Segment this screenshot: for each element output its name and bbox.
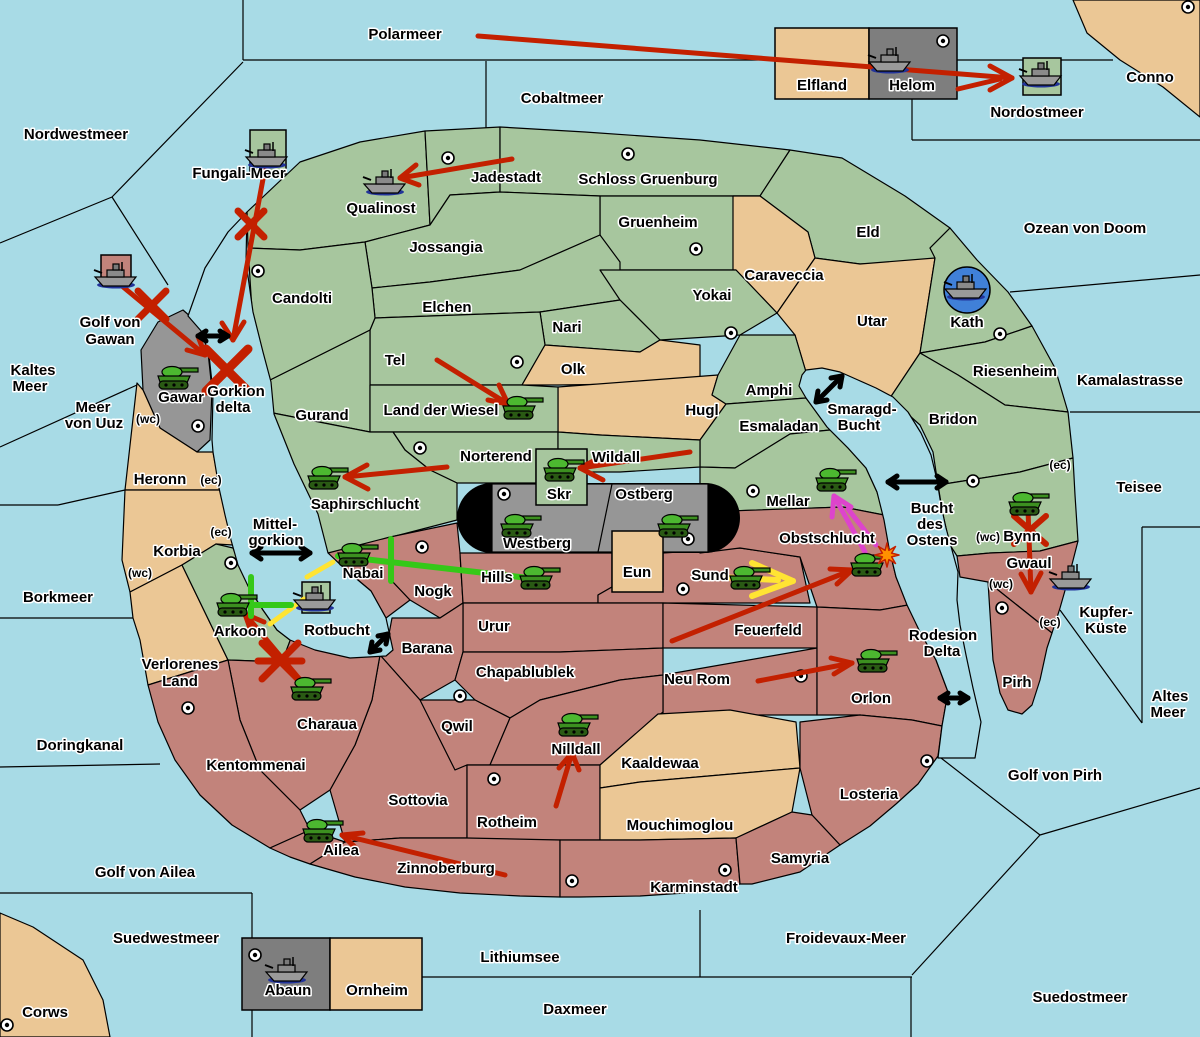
label-nordwestmeer: Nordwestmeer: [24, 126, 128, 143]
label-norterend: Norterend: [460, 448, 532, 465]
region-ornheim[interactable]: [330, 938, 422, 1010]
label-chapablublek: Chapablublek: [476, 664, 575, 681]
city-marker-core: [998, 332, 1002, 336]
label-doringkanal: Doringkanal: [37, 737, 124, 754]
label--ec-: (ec): [1049, 458, 1070, 472]
city-marker-core: [626, 152, 630, 156]
label-gwaul: Gwaul: [1006, 555, 1051, 572]
label--ec-: (ec): [1039, 615, 1060, 629]
label-candolti: Candolti: [272, 290, 332, 307]
label-land-der-wiesel: Land der Wiesel: [384, 402, 499, 419]
label-teisee: Teisee: [1116, 479, 1162, 496]
label-sund: Sund: [691, 567, 729, 584]
label-froidevaux-meer: Froidevaux-Meer: [786, 930, 906, 947]
label-nari: Nari: [552, 319, 581, 336]
label-arkoon: Arkoon: [214, 623, 267, 640]
city-marker-core: [502, 492, 506, 496]
label-kentommenai: Kentommenai: [206, 757, 305, 774]
explosion-icon: [875, 543, 899, 567]
label-caraveccia: Caraveccia: [744, 267, 824, 284]
label-kupfer-: Kupfer-: [1079, 604, 1132, 621]
city-marker-core: [256, 269, 260, 273]
label-losteria: Losteria: [840, 786, 899, 803]
label-bynn: Bynn: [1003, 528, 1041, 545]
label-gruenheim: Gruenheim: [618, 214, 697, 231]
city-marker-core: [5, 1023, 9, 1027]
label-orlon: Orlon: [851, 690, 891, 707]
label-qualinost: Qualinost: [346, 200, 415, 217]
label-elfland: Elfland: [797, 77, 847, 94]
label-delta: Delta: [924, 643, 961, 660]
city-marker-core: [446, 156, 450, 160]
label-heronn: Heronn: [134, 471, 187, 488]
label-corws: Corws: [22, 1004, 68, 1021]
label-charaua: Charaua: [297, 716, 358, 733]
label--wc-: (wc): [128, 566, 152, 580]
label-kamalastrasse: Kamalastrasse: [1077, 372, 1183, 389]
city-marker-core: [694, 247, 698, 251]
label-esmaladan: Esmaladan: [739, 418, 818, 435]
label-ostens: Ostens: [907, 532, 958, 549]
label-ostberg: Ostberg: [615, 486, 673, 503]
city-marker-core: [570, 879, 574, 883]
label-daxmeer: Daxmeer: [543, 1001, 607, 1018]
move-arrow: [816, 400, 827, 402]
label-meer: Meer: [75, 399, 110, 416]
label-gorkion: gorkion: [249, 532, 304, 549]
label-altes: Altes: [1152, 688, 1189, 705]
city-marker-core: [196, 424, 200, 428]
city-marker-core: [458, 694, 462, 698]
city-marker-core: [941, 39, 945, 43]
label-rodesion: Rodesion: [909, 627, 977, 644]
label-eun: Eun: [623, 564, 651, 581]
label-elchen: Elchen: [422, 299, 471, 316]
label-wildall: Wildall: [592, 449, 640, 466]
move-arrow: [1028, 510, 1031, 592]
label-meer: Meer: [12, 378, 47, 395]
label-zinnoberburg: Zinnoberburg: [397, 860, 495, 877]
label-smaragd-: Smaragd-: [827, 401, 896, 418]
label-bridon: Bridon: [929, 411, 977, 428]
label-bucht: Bucht: [911, 500, 954, 517]
label-gawar: Gawar: [158, 389, 204, 406]
label-kath: Kath: [950, 314, 983, 331]
label-barana: Barana: [402, 640, 454, 657]
label-ornheim: Ornheim: [346, 982, 408, 999]
label-rotheim: Rotheim: [477, 814, 537, 831]
city-marker-core: [723, 868, 727, 872]
city-marker-core: [681, 587, 685, 591]
label-obstschlucht: Obstschlucht: [779, 530, 875, 547]
city-marker-core: [515, 360, 519, 364]
label--wc-: (wc): [976, 530, 1000, 544]
move-arrow: [831, 376, 842, 378]
label--ec-: (ec): [200, 473, 221, 487]
label-riesenheim: Riesenheim: [973, 363, 1057, 380]
label-von-uuz: von Uuz: [65, 415, 123, 432]
world-map: PolarmeerNordwestmeerCobaltmeerNordostme…: [0, 0, 1200, 1037]
label-verlorenes: Verlorenes: [142, 656, 219, 673]
label-nabai: Nabai: [343, 565, 384, 582]
city-marker-core: [751, 489, 755, 493]
city-marker-core: [229, 561, 233, 565]
label-gawan: Gawan: [85, 331, 134, 348]
move-arrow: [370, 650, 380, 652]
city-marker-core: [729, 331, 733, 335]
city-marker-core: [686, 537, 690, 541]
label--ec-: (ec): [210, 525, 231, 539]
label-conno: Conno: [1126, 69, 1173, 86]
label-golf-von: Golf von: [80, 314, 141, 331]
city-marker-core: [418, 446, 422, 450]
label-hills: Hills: [481, 569, 513, 586]
city-marker-core: [971, 479, 975, 483]
label-suedwestmeer: Suedwestmeer: [113, 930, 219, 947]
city-marker-core: [1000, 606, 1004, 610]
label-eld: Eld: [856, 224, 879, 241]
label-samyria: Samyria: [771, 850, 830, 867]
label-borkmeer: Borkmeer: [23, 589, 93, 606]
label-bucht: Bucht: [838, 417, 881, 434]
label-urur: Urur: [478, 618, 510, 635]
label-saphirschlucht: Saphirschlucht: [311, 496, 419, 513]
move-arrow: [832, 496, 834, 517]
region-eun-box[interactable]: [612, 531, 663, 592]
label-cobaltmeer: Cobaltmeer: [521, 90, 604, 107]
label-suedostmeer: Suedostmeer: [1032, 989, 1127, 1006]
label-korbia: Korbia: [153, 543, 201, 560]
label-nilldall: Nilldall: [551, 741, 600, 758]
label-ozean-von-doom: Ozean von Doom: [1024, 220, 1147, 237]
label-nogk: Nogk: [414, 583, 452, 600]
label-yokai: Yokai: [693, 287, 732, 304]
city-marker-core: [420, 545, 424, 549]
label-amphi: Amphi: [746, 382, 793, 399]
label-gorkion: Gorkion: [207, 383, 265, 400]
label-jossangia: Jossangia: [409, 239, 483, 256]
city-marker-core: [492, 777, 496, 781]
label-k-ste: Küste: [1085, 620, 1127, 637]
label-skr: Skr: [547, 486, 571, 503]
label--wc-: (wc): [989, 577, 1013, 591]
label-jadestadt: Jadestadt: [471, 169, 541, 186]
label-meer: Meer: [1150, 704, 1185, 721]
label-helom: Helom: [889, 77, 935, 94]
city-marker-core: [253, 953, 257, 957]
label-abaun: Abaun: [265, 982, 312, 999]
label-olk: Olk: [561, 361, 586, 378]
label-pirh: Pirh: [1002, 674, 1031, 691]
label-kaltes: Kaltes: [10, 362, 55, 379]
label-des: des: [917, 516, 943, 533]
label-kaaldewaa: Kaaldewaa: [621, 755, 699, 772]
city-marker-core: [186, 706, 190, 710]
label-delta: delta: [215, 399, 251, 416]
label-karminstadt: Karminstadt: [650, 879, 738, 896]
label-mittel-: Mittel-: [253, 516, 297, 533]
label-utar: Utar: [857, 313, 887, 330]
label-land: Land: [162, 673, 198, 690]
label-golf-von-pirh: Golf von Pirh: [1008, 767, 1102, 784]
label-golf-von-ailea: Golf von Ailea: [95, 864, 196, 881]
label-feuerfeld: Feuerfeld: [734, 622, 802, 639]
label-sottovia: Sottovia: [388, 792, 448, 809]
label-neu-rom: Neu Rom: [664, 671, 730, 688]
label-gurand: Gurand: [295, 407, 348, 424]
label-qwil: Qwil: [441, 718, 473, 735]
game-map-stage: PolarmeerNordwestmeerCobaltmeerNordostme…: [0, 0, 1200, 1037]
label-ailea: Ailea: [323, 842, 360, 859]
label-polarmeer: Polarmeer: [368, 26, 442, 43]
label-tel: Tel: [385, 352, 406, 369]
move-arrow: [378, 634, 388, 636]
label-hugl: Hugl: [685, 402, 718, 419]
label-nordostmeer: Nordostmeer: [990, 104, 1084, 121]
city-marker-core: [925, 759, 929, 763]
label-lithiumsee: Lithiumsee: [480, 949, 559, 966]
label-rotbucht: Rotbucht: [304, 622, 370, 639]
label-mellar: Mellar: [766, 493, 810, 510]
label-mouchimoglou: Mouchimoglou: [627, 817, 734, 834]
label-schloss-gruenburg: Schloss Gruenburg: [578, 171, 717, 188]
label--wc-: (wc): [136, 412, 160, 426]
city-marker-core: [1186, 5, 1190, 9]
